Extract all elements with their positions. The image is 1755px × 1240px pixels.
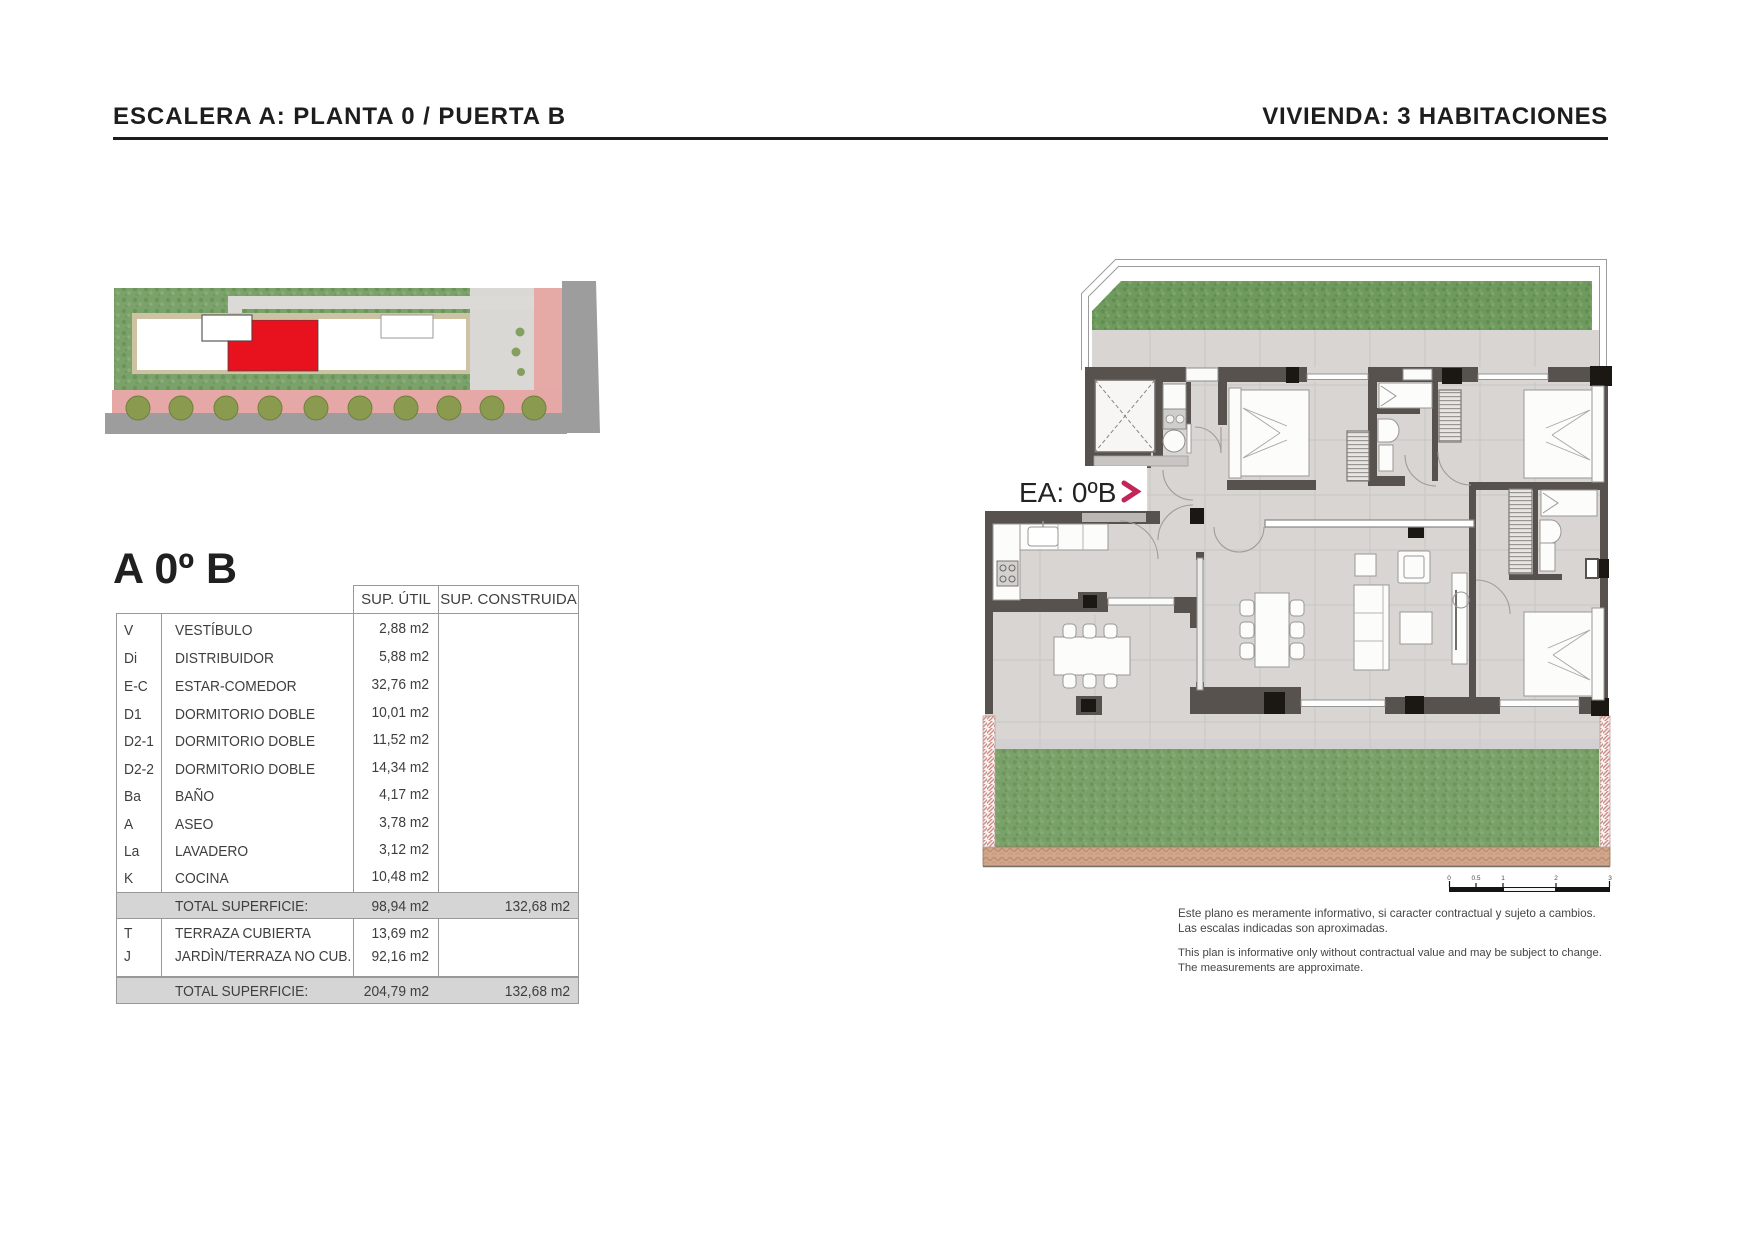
svg-text:0.5: 0.5: [1471, 875, 1480, 882]
svg-text:3: 3: [1608, 875, 1612, 882]
svg-text:1: 1: [1501, 875, 1505, 882]
svg-text:0: 0: [1447, 875, 1451, 882]
svg-text:2: 2: [1554, 875, 1558, 882]
svg-text:EA: 0ºB: EA: 0ºB: [1019, 477, 1116, 508]
